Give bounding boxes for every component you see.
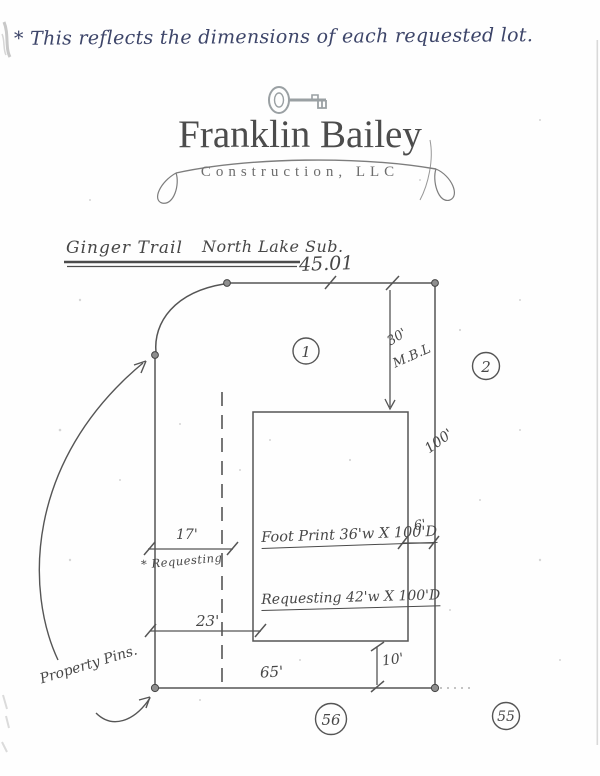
handwritten-note: * This reflects the dimensions of each r… xyxy=(14,24,533,50)
dim-top-width-label: 45.01 xyxy=(299,252,354,276)
property-pin xyxy=(151,684,158,691)
lot-2-number: 2 xyxy=(481,358,491,376)
key-icon xyxy=(269,87,326,113)
property-pin xyxy=(432,280,439,287)
dim-bottom-width-label: 65' xyxy=(260,662,284,681)
boundary-corner-arc xyxy=(156,284,224,353)
dim-requesting-offset-label: 17' xyxy=(176,527,198,543)
property-pin xyxy=(152,352,159,359)
company-name: Franklin Bailey xyxy=(0,112,600,157)
lot-1-number: 1 xyxy=(301,343,311,361)
left-curved-arrow xyxy=(39,361,146,660)
dim-rear-gap-label: 10' xyxy=(381,651,405,670)
property-pin xyxy=(224,280,231,287)
dim-building-offset-label: 23' xyxy=(196,612,219,630)
lot-56-number: 56 xyxy=(321,711,340,729)
street-title: Ginger Trail xyxy=(66,238,183,258)
scan-speckles xyxy=(59,119,561,701)
property-pins-arrow xyxy=(96,697,150,722)
lot-55-number: 55 xyxy=(497,709,515,725)
scanned-document-page: * This reflects the dimensions of each r… xyxy=(0,0,600,776)
title-underline xyxy=(64,262,300,267)
property-pin xyxy=(431,684,438,691)
company-subtitle: Construction, LLC xyxy=(0,164,600,181)
